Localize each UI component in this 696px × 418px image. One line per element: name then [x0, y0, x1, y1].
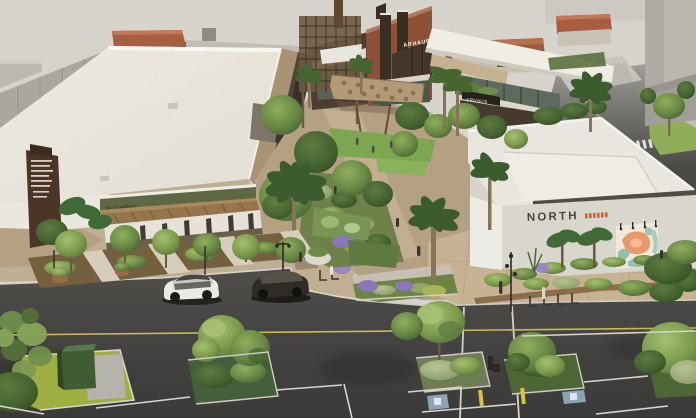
svg-text:NORTH: NORTH: [527, 210, 579, 224]
